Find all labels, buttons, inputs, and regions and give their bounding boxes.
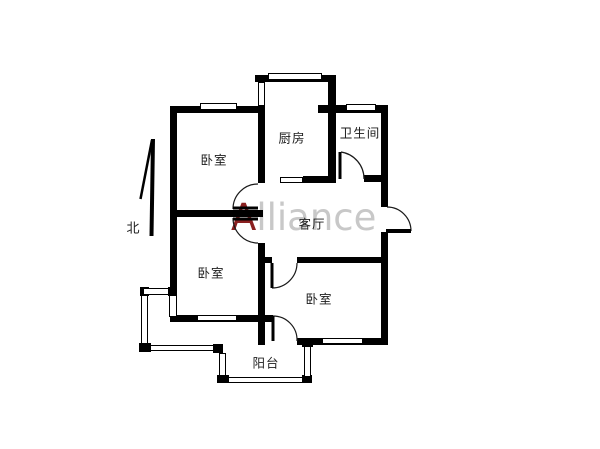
room-label-bathroom: 卫生间 [340,123,381,142]
door-arc [233,218,258,243]
door-arc [341,152,364,179]
room-label-bedroom-bottom-right: 卧室 [305,289,332,308]
room-label-bedroom-top-left: 卧室 [200,150,227,169]
room-label-bedroom-bottom-left: 卧室 [197,263,224,282]
compass-north-label: 北 [126,218,139,237]
room-label-living-room: 客厅 [298,214,325,233]
door-arc [272,263,297,288]
north-arrow-shaft [152,139,154,236]
floor-plan-canvas: Alliance 卧室 卧室 卧室 厨房 卫生间 客厅 阳台 北 [0,0,600,449]
door-arc [387,207,411,231]
room-label-kitchen: 厨房 [278,128,305,147]
door-arc [273,316,297,341]
room-label-balcony: 阳台 [252,353,279,372]
door-arc [233,184,258,209]
